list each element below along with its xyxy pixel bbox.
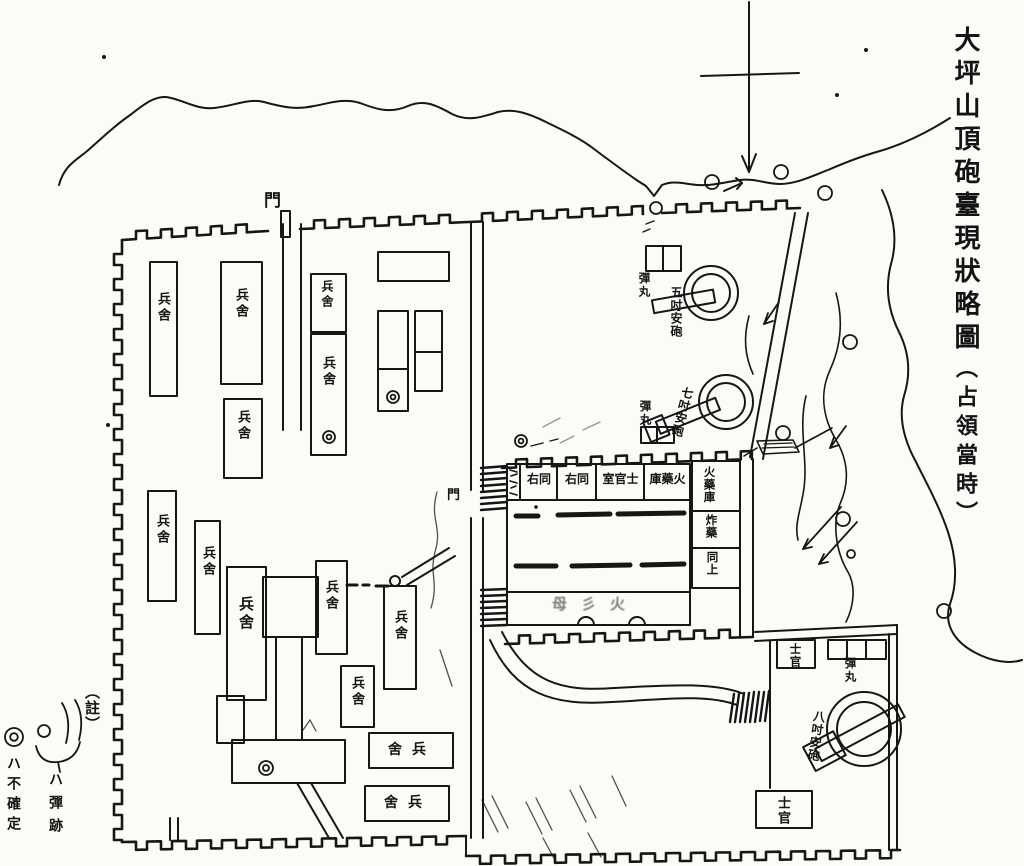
page-title-paren: （占領當時） <box>952 356 978 530</box>
legend-brace <box>36 742 80 762</box>
explosives-label: 炸藥 <box>705 514 717 539</box>
storehouse-building <box>378 311 408 411</box>
crenellated-wall <box>300 215 468 229</box>
crenellated-wall <box>122 836 466 850</box>
gun-emplacement-5inch <box>646 246 738 320</box>
barracks-label: 兵舍 <box>201 546 214 578</box>
corridor-building <box>263 577 318 637</box>
coastline <box>59 97 950 196</box>
crenellated-wall <box>466 850 900 864</box>
officer-room-label: 士官室 <box>597 473 644 485</box>
powder-magazine-label: 火藥庫 <box>645 473 690 485</box>
ramp-hatching <box>481 466 507 626</box>
gully-line <box>824 293 853 622</box>
barracks-label: 兵舍 <box>321 280 333 310</box>
barracks-label: 兵舍 <box>234 288 247 320</box>
barracks-label: 兵舍 <box>321 356 334 388</box>
barracks-label: 兵舍 <box>236 410 249 442</box>
battery-map: 大坪山頂砲臺現狀略圖（占領當時） 門 門 兵舍 兵舍 兵舍 兵舍 兵舍 兵舍 兵… <box>0 0 1024 866</box>
crenellated-wall <box>662 201 800 214</box>
crenellated-wall <box>505 630 753 644</box>
barracks-label: 兵舍 <box>324 580 337 612</box>
legend-circle-symbol <box>38 725 50 737</box>
legend-shell-trace: ハ彈跡 <box>48 772 62 841</box>
gun-5inch-label: 五吋安砲 <box>670 286 682 338</box>
legend-trace-mark <box>75 700 81 740</box>
crenellated-wall <box>114 240 122 842</box>
gully-line <box>797 396 806 540</box>
doorway-arc <box>578 617 594 625</box>
storehouse-building <box>378 252 449 281</box>
gully-line <box>746 316 753 374</box>
officer-label: 士官 <box>789 643 801 668</box>
barracks-building <box>148 491 176 601</box>
barracks-label: 兵舍 <box>393 610 406 642</box>
map-drawing <box>0 0 1024 866</box>
long-building <box>232 740 345 783</box>
illegible-small-text <box>510 470 517 495</box>
barracks-building <box>227 567 266 700</box>
doorway-arc <box>629 617 645 625</box>
barracks-label: 兵舍 <box>155 514 168 546</box>
legend-note: （註） <box>84 684 99 732</box>
ramp-hatching <box>730 691 769 722</box>
legend-uncertain: ハ不確定 <box>6 756 20 836</box>
dashed-track <box>347 548 455 586</box>
faint-marks: 母彡火 <box>552 597 639 612</box>
gate-label: 門 <box>447 489 460 502</box>
legend-trace-mark <box>62 703 68 743</box>
gate-label: 門 <box>264 193 281 210</box>
page-title-text: 大坪山頂砲臺現狀略圖 <box>950 26 980 356</box>
barracks-label: 兵舍 <box>383 743 441 757</box>
ditto-right-label: 同右 <box>558 473 596 485</box>
annotation-arrow <box>764 302 846 448</box>
shells-label: 彈丸 <box>638 272 650 299</box>
barracks-building <box>150 262 177 396</box>
powder-magazine-label: 火藥庫 <box>703 466 715 504</box>
ditto-above-label: 同上 <box>706 551 718 576</box>
barracks-label: 兵舍 <box>379 796 437 810</box>
barracks-building <box>311 334 346 455</box>
page-title: 大坪山頂砲臺現狀略圖（占領當時） <box>952 26 978 530</box>
small-circle-marker <box>390 576 400 586</box>
barracks-label: 兵舍 <box>350 676 363 708</box>
road-from-gate <box>283 224 301 430</box>
crenellated-wall <box>468 206 643 222</box>
ditto-right-label: 同右 <box>521 473 557 485</box>
plain-walls <box>170 211 897 856</box>
annex-building <box>217 696 244 743</box>
gun-emplacement-7inch <box>641 375 753 443</box>
shells-label: 彈丸 <box>844 657 856 684</box>
bunk-dashes <box>516 513 684 566</box>
barracks-label: 兵舍 <box>238 596 253 632</box>
barracks-building <box>221 262 262 384</box>
barracks-label: 兵舍 <box>156 292 169 324</box>
north-arrow <box>701 2 799 191</box>
crenellated-wall <box>122 224 268 240</box>
curved-road <box>490 632 769 722</box>
legend-uncertain-symbol <box>5 728 23 746</box>
shells-label: 彈丸 <box>639 400 651 427</box>
officer-label: 士官 <box>776 796 789 826</box>
